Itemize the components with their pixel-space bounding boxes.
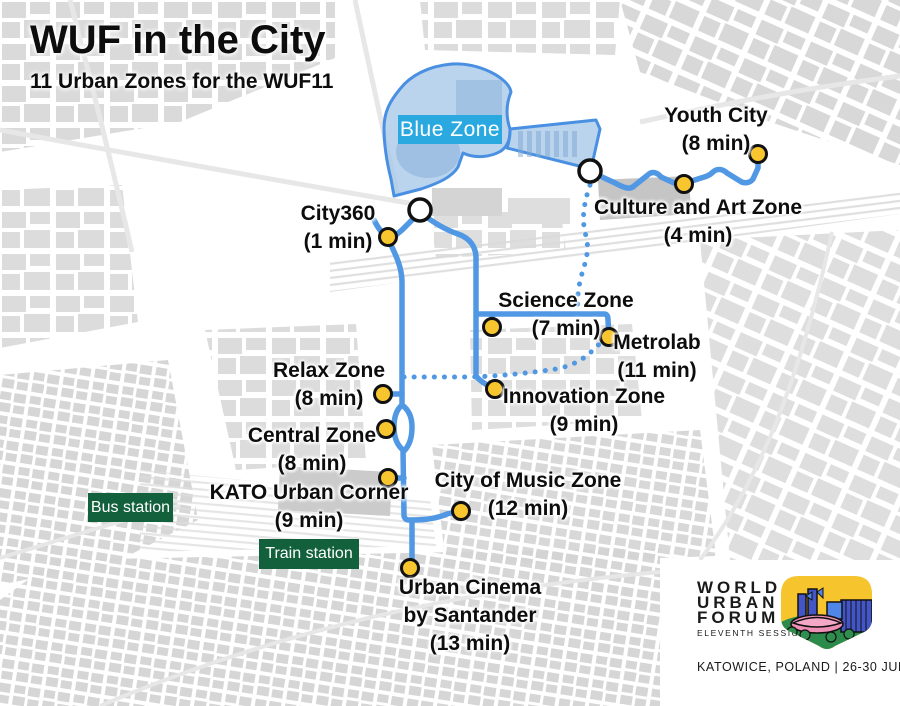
zone-name: Culture and Art Zone	[594, 194, 802, 222]
zone-time: (9 min)	[503, 411, 665, 439]
zone-label-city360: City360 (1 min)	[301, 200, 376, 256]
wuf-city-map-poster: WUF in the City 11 Urban Zones for the W…	[0, 0, 900, 706]
logo-footer-line: KATOWICE, POLAND | 26-30 JUNE 2022	[697, 660, 900, 674]
zone-time: (9 min)	[210, 507, 409, 535]
wuf-logo: WORLD URBAN FORUM ELEVENTH SESSION	[660, 560, 900, 706]
train-station-badge: Train station	[259, 539, 359, 569]
marker-city360	[380, 229, 397, 246]
marker-culture-art	[676, 176, 693, 193]
marker-central	[378, 421, 395, 438]
zone-time: (4 min)	[594, 222, 802, 250]
page-title: WUF in the City	[30, 18, 333, 62]
route-junction-circle-bluezone	[579, 160, 601, 182]
zone-label-innovation: Innovation Zone (9 min)	[503, 383, 665, 439]
zone-name: KATO Urban Corner	[210, 479, 409, 507]
zone-name: Youth City	[664, 102, 767, 130]
zone-time: (8 min)	[273, 385, 385, 413]
zone-label-relax: Relax Zone (8 min)	[273, 357, 385, 413]
header: WUF in the City 11 Urban Zones for the W…	[30, 18, 333, 94]
marker-innovation	[487, 381, 504, 398]
zone-name: Central Zone	[248, 422, 376, 450]
page-subtitle: 11 Urban Zones for the WUF11	[30, 70, 333, 94]
route-junction-circle-city360	[409, 199, 431, 221]
zone-label-urban-cinema: Urban Cinema by Santander (13 min)	[399, 574, 541, 658]
zone-name: Urban Cinema	[399, 574, 541, 602]
wuf-logo-emblem-icon	[779, 574, 874, 657]
zone-time: (12 min)	[435, 495, 622, 523]
zone-name-line2: by Santander	[399, 602, 541, 630]
zone-label-central: Central Zone (8 min)	[248, 422, 376, 478]
zone-name: Innovation Zone	[503, 383, 665, 411]
zone-name: Relax Zone	[273, 357, 385, 385]
zone-name: City of Music Zone	[435, 467, 622, 495]
zone-time: (8 min)	[248, 450, 376, 478]
zone-label-culture-art: Culture and Art Zone (4 min)	[594, 194, 802, 250]
zone-time: (8 min)	[664, 130, 767, 158]
zone-label-metrolab: Metrolab (11 min)	[613, 329, 701, 385]
bus-station-badge: Bus station	[88, 493, 173, 522]
zone-time: (11 min)	[613, 357, 701, 385]
zone-label-city-of-music: City of Music Zone (12 min)	[435, 467, 622, 523]
zone-name: City360	[301, 200, 376, 228]
building-block	[508, 198, 570, 224]
zone-time: (13 min)	[399, 630, 541, 658]
zone-name: Metrolab	[613, 329, 701, 357]
zone-label-youth-city: Youth City (8 min)	[664, 102, 767, 158]
building-block	[432, 188, 502, 216]
zone-name: Science Zone	[498, 287, 633, 315]
zone-label-kato: KATO Urban Corner (9 min)	[210, 479, 409, 535]
blue-zone-label: Blue Zone	[398, 115, 502, 144]
zone-time: (1 min)	[301, 228, 376, 256]
